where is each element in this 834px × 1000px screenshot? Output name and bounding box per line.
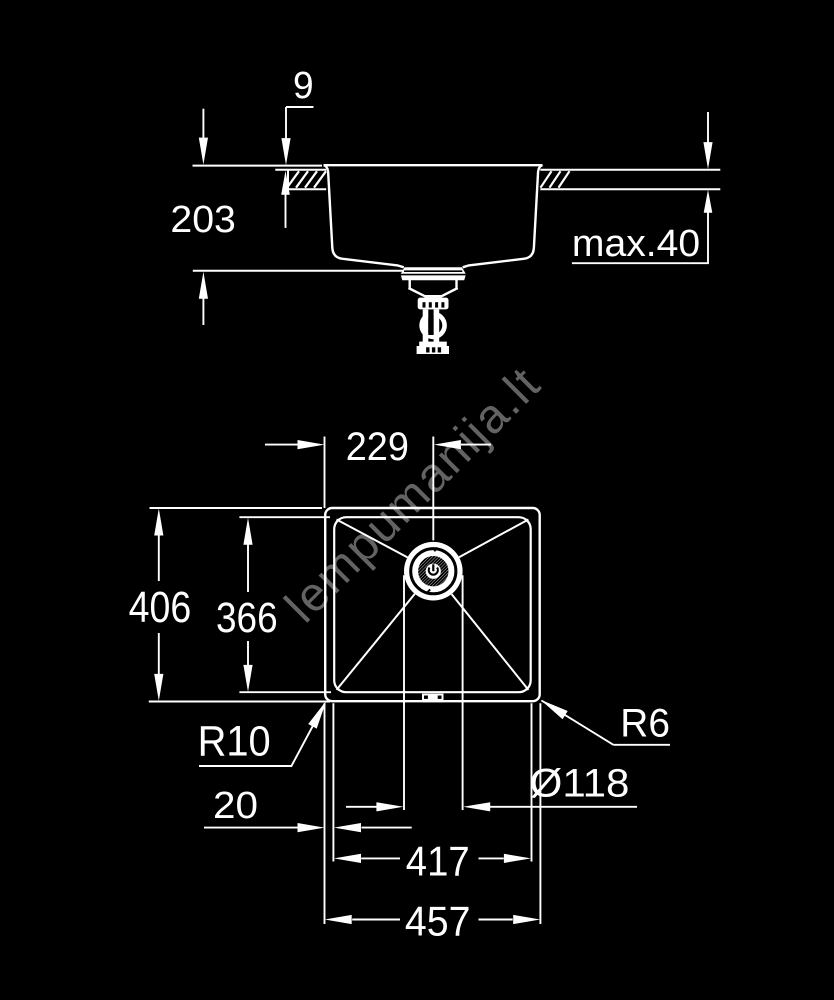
svg-text:9: 9 [293,65,314,107]
svg-text:366: 366 [216,594,278,642]
svg-text:20: 20 [213,785,258,827]
svg-text:R6: R6 [620,702,670,746]
svg-text:417: 417 [406,838,470,885]
svg-text:406: 406 [129,583,192,632]
svg-text:229: 229 [346,425,409,469]
svg-text:457: 457 [405,898,471,945]
svg-text:max.40: max.40 [572,223,700,265]
svg-text:203: 203 [170,199,236,241]
svg-text:R10: R10 [198,718,271,766]
svg-text:Ø118: Ø118 [530,762,630,806]
